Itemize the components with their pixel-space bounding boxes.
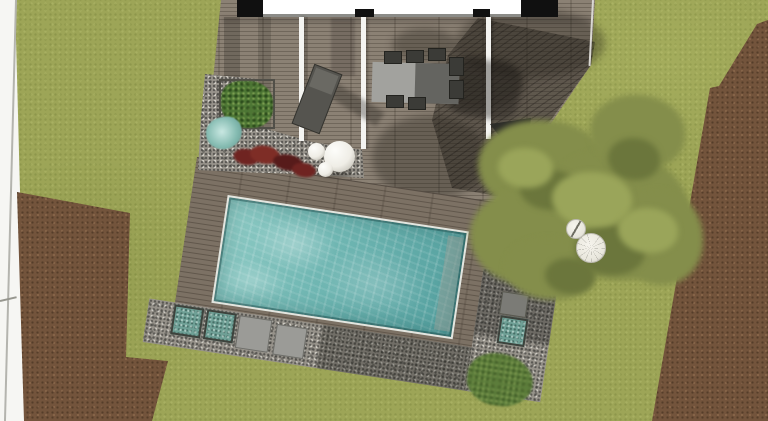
house-wall-end — [521, 0, 558, 17]
house-wall-pier — [473, 9, 490, 18]
decor-sphere-small — [308, 143, 325, 160]
dining-chair — [408, 97, 426, 110]
equipment-pad — [499, 291, 529, 318]
square-planter — [170, 304, 204, 338]
dining-chair — [449, 57, 464, 76]
square-planter — [497, 315, 529, 347]
stepping-stone — [235, 315, 273, 353]
red-plant — [291, 161, 317, 179]
dining-chair — [428, 48, 446, 61]
house-wall-pier — [355, 9, 374, 18]
dining-chair — [449, 80, 464, 99]
landscape-plan-canvas — [0, 0, 768, 421]
decor-sphere-small — [318, 162, 333, 177]
dining-chair — [406, 50, 424, 63]
lounger-backrest — [309, 68, 339, 95]
beam-shadow — [331, 18, 355, 76]
stepping-stone — [272, 324, 307, 359]
house-wall-corner — [237, 0, 263, 17]
dining-chair — [384, 51, 402, 64]
pergola-beam — [361, 17, 366, 149]
pool-bench — [434, 235, 464, 331]
dining-chair — [386, 95, 404, 108]
parasol-top — [576, 233, 606, 263]
square-planter — [203, 309, 237, 343]
